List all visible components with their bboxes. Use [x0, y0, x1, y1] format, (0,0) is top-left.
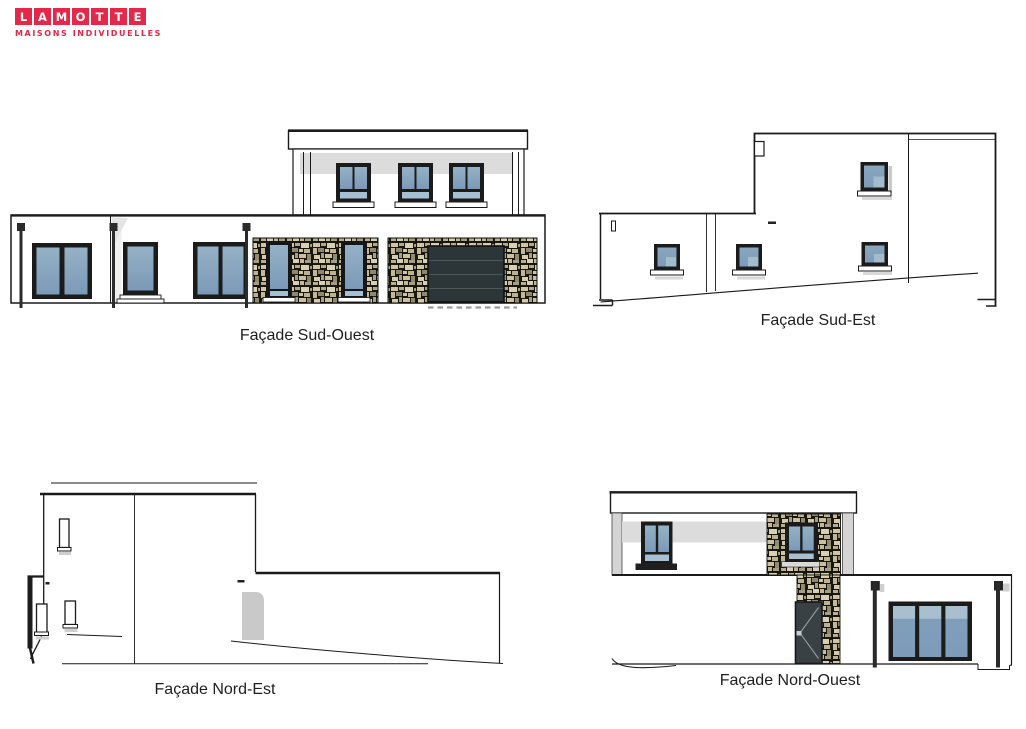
- ground-step-right: [978, 300, 997, 307]
- vent-dash: [238, 580, 245, 583]
- terrain-line: [231, 641, 503, 664]
- stone-window: [338, 241, 370, 302]
- facade-label-nord-ouest: Façade Nord-Ouest: [630, 672, 950, 690]
- logo-letter-tile: O: [72, 8, 89, 25]
- roof-detail-box: [755, 142, 765, 157]
- ground-floor: [11, 215, 545, 308]
- upper-window: [446, 163, 487, 208]
- roof-band: [289, 131, 528, 149]
- lamotte-logo: L A M O T T E MAISONS INDIVIDUELLES: [15, 8, 162, 38]
- terrace-line: [67, 635, 122, 637]
- window: [858, 162, 893, 200]
- logo-subtitle: MAISONS INDIVIDUELLES: [15, 29, 162, 38]
- window: [733, 244, 766, 280]
- facade-label-sud-ouest: Façade Sud-Ouest: [147, 327, 467, 345]
- terrain-dip: [612, 659, 676, 668]
- logo-letter-tile: T: [110, 8, 127, 25]
- glazed-door: [117, 242, 164, 303]
- sliding-window: [32, 243, 92, 299]
- facade-sud-est-drawing: [580, 100, 1026, 340]
- narrow-window: [58, 519, 72, 555]
- post: [871, 581, 885, 668]
- vent-detail: [612, 221, 616, 231]
- logo-letter-tile: M: [53, 8, 70, 25]
- wall-joint-lines: [707, 214, 716, 292]
- stone-window: [782, 523, 820, 568]
- facade-label-sud-est: Façade Sud-Est: [658, 312, 978, 330]
- logo-letter-tile: L: [15, 8, 32, 25]
- sliding-window: [193, 242, 248, 299]
- upper-floor: [288, 131, 528, 215]
- logo-letter-tile: E: [129, 8, 146, 25]
- logo-letter-tile: T: [91, 8, 108, 25]
- edge-shadow-tail: [30, 648, 34, 664]
- vent-dash: [768, 222, 776, 225]
- utility-door-gray: [242, 592, 264, 640]
- upper-window: [333, 163, 374, 208]
- ground-step-right: [978, 664, 1012, 670]
- edge-shadow-bar: [28, 578, 33, 649]
- facade-nord-est-drawing: [0, 440, 600, 710]
- logo-letter-tiles: L A M O T T E: [15, 8, 162, 25]
- entry-door: [796, 602, 823, 664]
- upper-window: [395, 163, 436, 208]
- upper-window: [636, 522, 678, 571]
- post: [994, 581, 1010, 668]
- bay-window: [889, 602, 973, 662]
- left-edge-shading: [612, 513, 622, 575]
- right-edge-shading: [843, 513, 854, 575]
- window: [859, 242, 893, 275]
- roof-band: [611, 493, 857, 514]
- narrow-window: [35, 604, 50, 640]
- facade-sud-ouest-drawing: [0, 90, 560, 360]
- stone-window: [263, 241, 295, 302]
- facade-label-nord-est: Façade Nord-Est: [55, 681, 375, 699]
- elevation-sheet: L A M O T T E MAISONS INDIVIDUELLES: [0, 0, 1026, 729]
- narrow-window: [63, 601, 78, 632]
- logo-letter-tile: A: [34, 8, 51, 25]
- garage-door: [428, 246, 504, 302]
- window: [651, 244, 684, 280]
- wall-tick: [46, 582, 50, 585]
